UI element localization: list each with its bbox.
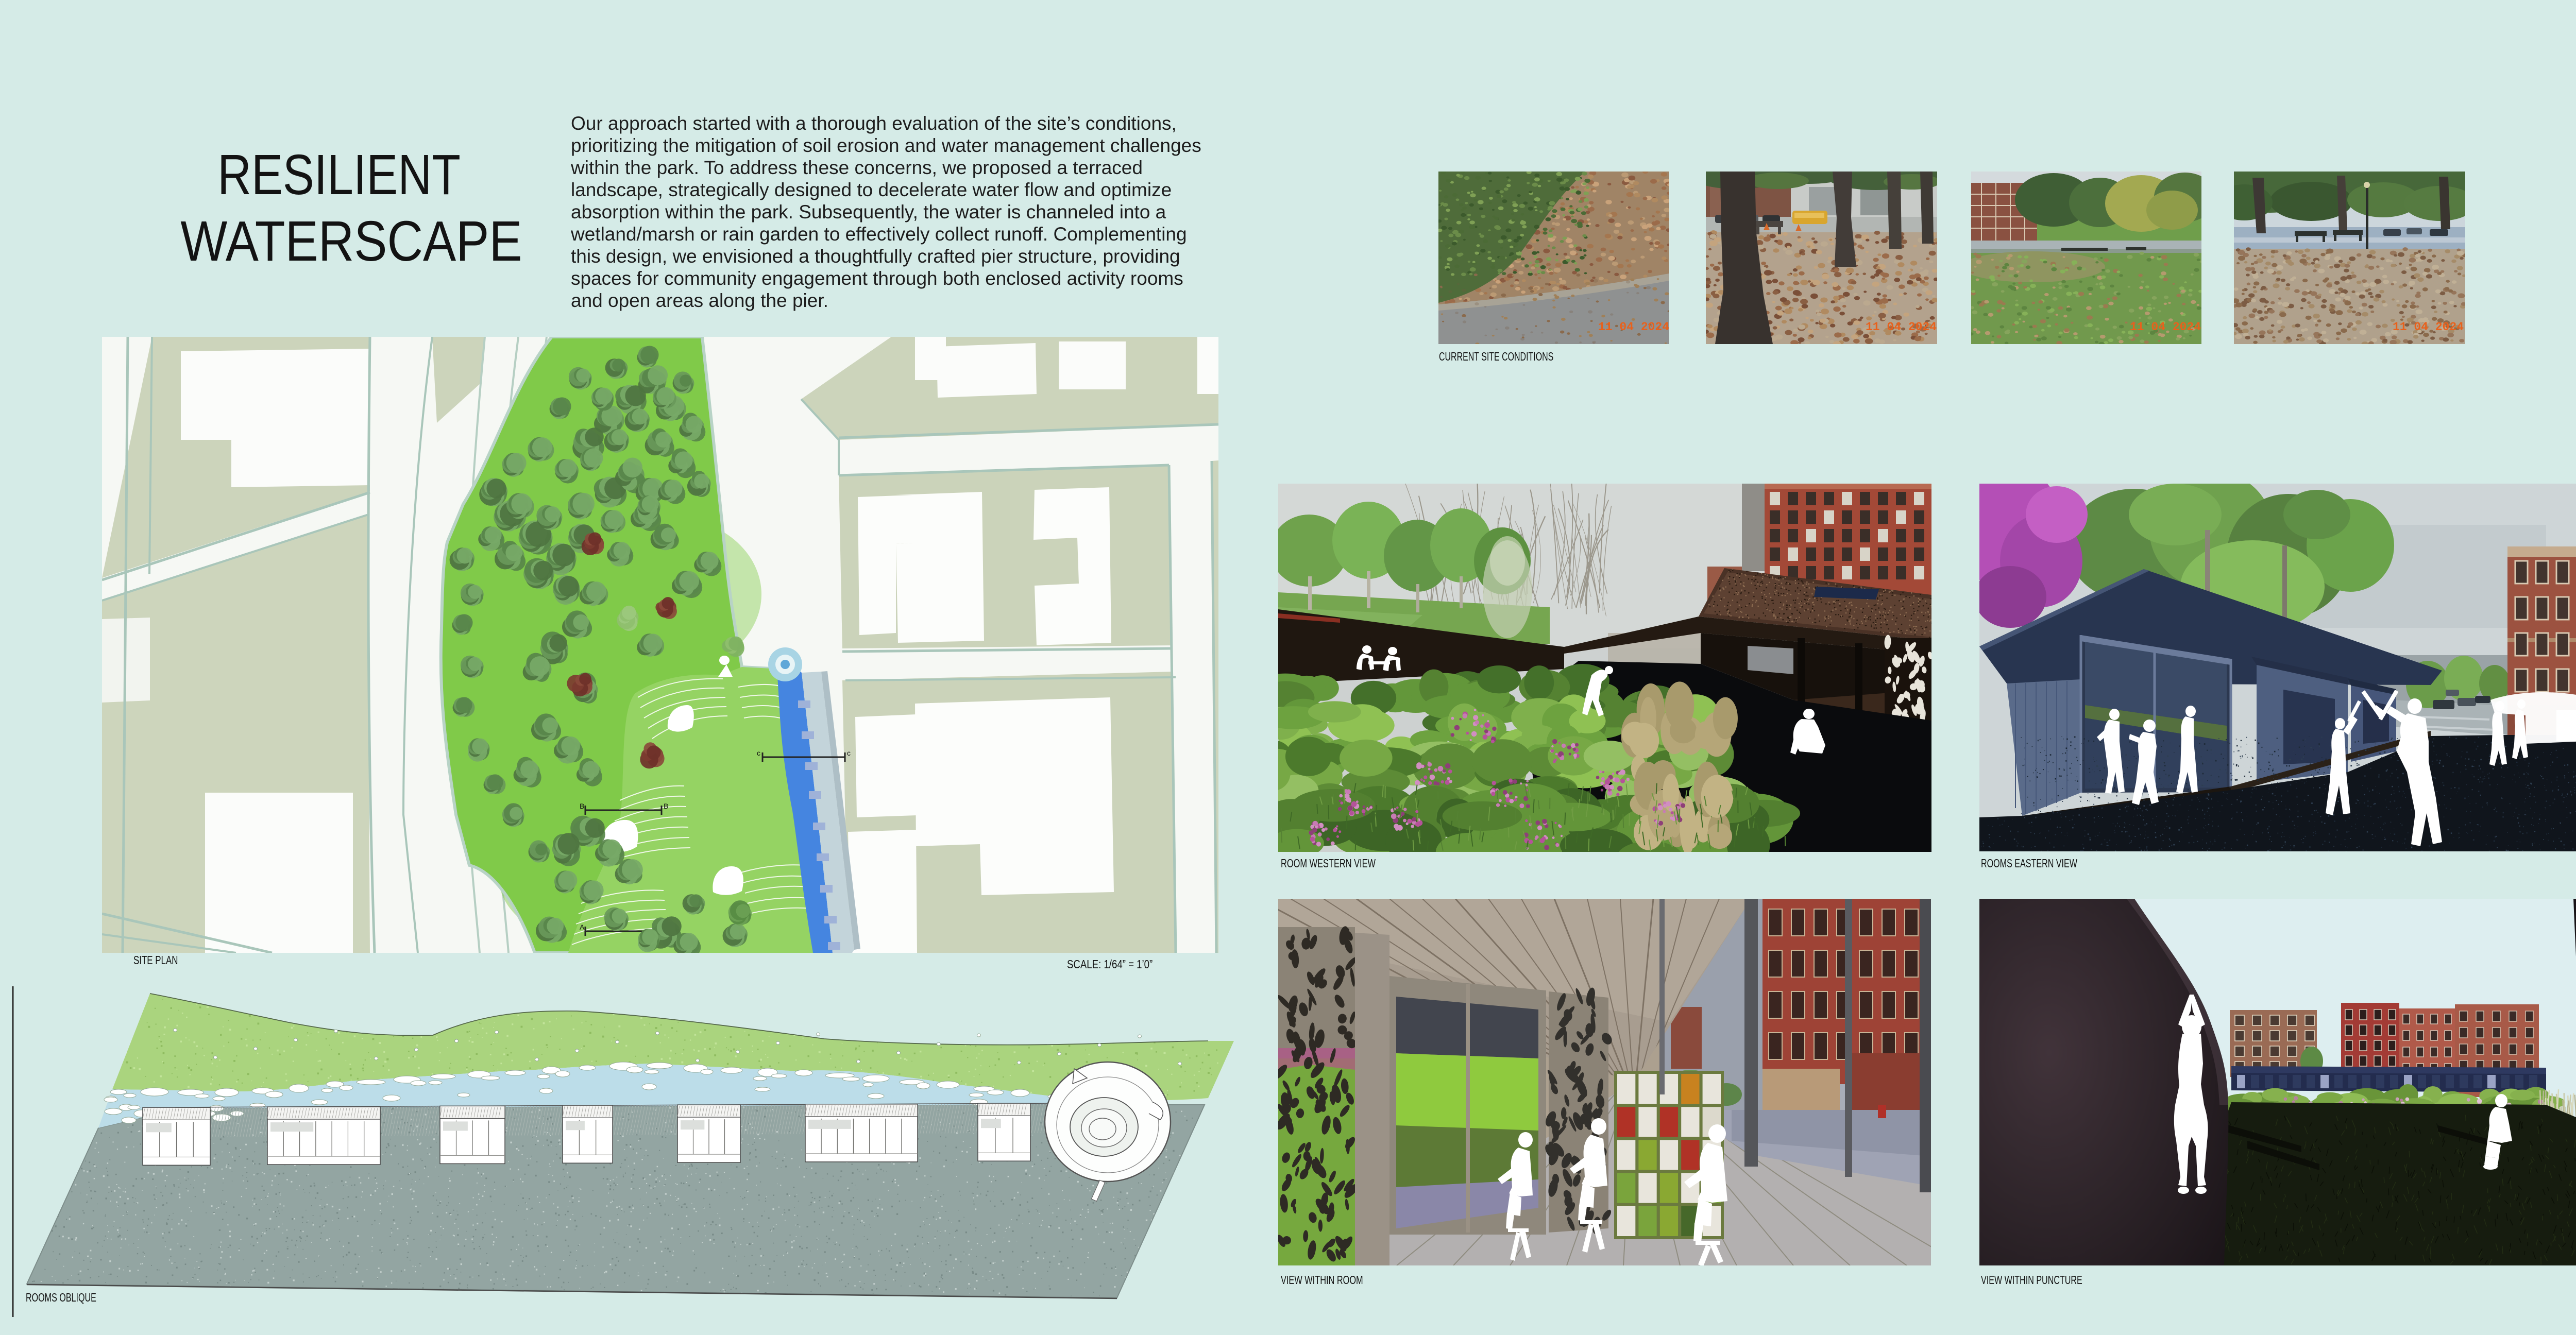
svg-text:c: c xyxy=(847,749,851,757)
svg-text:B: B xyxy=(580,802,584,810)
svg-text:c: c xyxy=(757,749,760,757)
svg-text:A: A xyxy=(580,923,585,931)
svg-text:B: B xyxy=(664,802,668,810)
